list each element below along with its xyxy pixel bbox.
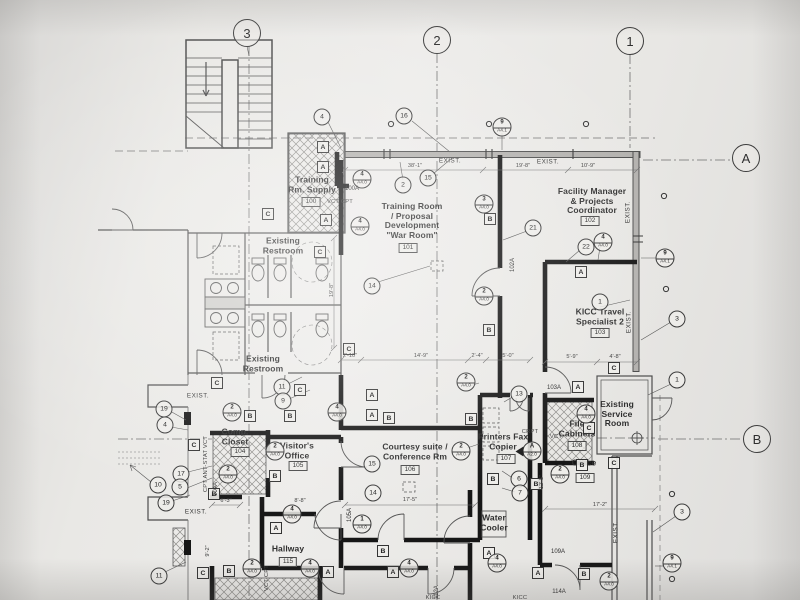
wall-tag: A xyxy=(320,214,332,226)
wall-tag: B xyxy=(487,473,499,485)
grid-marker-A: A xyxy=(732,144,760,172)
detail-callout: 2A4.0 xyxy=(266,442,285,461)
wall-tag: C xyxy=(197,567,209,579)
grid-marker-2: 2 xyxy=(423,26,451,54)
door-tag: 105A xyxy=(347,508,353,522)
room-label: Comp.Closet xyxy=(222,428,249,447)
room-number: 108 xyxy=(568,441,587,451)
detail-callout: 2A4.0 xyxy=(457,373,476,392)
keynote-callout: 19 xyxy=(156,401,173,418)
grid-marker-B: B xyxy=(743,425,771,453)
room-label: TrainingRm. Supply xyxy=(288,176,336,195)
detail-callout: 4A4.0 xyxy=(328,403,347,422)
detail-callout: 4A4.0 xyxy=(400,559,419,578)
wall-tag: B xyxy=(377,545,389,557)
keynote-callout: 16 xyxy=(396,108,413,125)
wall-tag: A xyxy=(366,389,378,401)
detail-callout: 4A4.0 xyxy=(283,505,302,524)
room-number: 106 xyxy=(401,465,420,475)
room-label: Training Room/ ProposalDevelopment"War R… xyxy=(382,202,443,240)
room-label: WaterCooler xyxy=(480,514,508,533)
detail-callout: 2A4.0 xyxy=(452,442,471,461)
room-label: Visitor'sOffice xyxy=(280,442,314,461)
wall-tag: A xyxy=(317,161,329,173)
door-tag: 100A xyxy=(345,186,359,192)
detail-callout: 4A4.0 xyxy=(594,233,613,252)
finish-note: VCT CPT xyxy=(264,565,270,591)
exist-label: EXIST. xyxy=(187,393,209,400)
dimension-text: 5'-0" xyxy=(502,353,513,359)
detail-callout: 2A4.0 xyxy=(219,465,238,484)
finish-note: CPT ANT-STAT VCT xyxy=(203,436,209,492)
exist-label: EXIST. xyxy=(439,158,461,165)
dimension-text: 12'-5" xyxy=(539,475,545,489)
dimension-text: 17'-5" xyxy=(403,497,417,503)
wall-tag: A xyxy=(317,141,329,153)
dimension-text: 38'-1" xyxy=(408,163,422,169)
detail-callout: 9A4.1 xyxy=(663,554,682,573)
wall-tag: C xyxy=(314,246,326,258)
wall-tag: C xyxy=(211,377,223,389)
detail-callout: 9A4.1 xyxy=(656,249,675,268)
room-label: Hallway xyxy=(272,544,304,554)
room-number: 107 xyxy=(497,454,516,464)
detail-callout: 2A4.0 xyxy=(475,287,494,306)
dimension-text: 2'-4" xyxy=(471,353,482,359)
floorplan-labels: 321ABTrainingRm. Supply100Training Room/… xyxy=(0,0,800,600)
keynote-callout: 10 xyxy=(150,477,167,494)
wall-tag: A xyxy=(270,522,282,534)
dimension-text: 6'-3" xyxy=(220,498,231,504)
keynote-callout: 22 xyxy=(578,239,595,256)
dimension-text: 10'-9" xyxy=(581,163,595,169)
grid-marker-3: 3 xyxy=(233,19,261,47)
dimension-text: 14'-9" xyxy=(414,353,428,359)
keynote-callout: 9 xyxy=(275,393,292,410)
wall-tag: A xyxy=(387,566,399,578)
door-tag: 109A xyxy=(551,549,565,555)
keynote-callout: 5 xyxy=(172,479,189,496)
dimension-text: 19'-8" xyxy=(516,163,530,169)
door-tag: 103A xyxy=(547,385,561,391)
detail-callout: 2A4.0 xyxy=(551,465,570,484)
keynote-callout: 7 xyxy=(512,485,529,502)
wall-tag: C xyxy=(608,457,620,469)
detail-callout: 4A4.0 xyxy=(301,559,320,578)
room-number: 101 xyxy=(399,243,418,253)
keynote-callout: 15 xyxy=(364,456,381,473)
wall-tag: B xyxy=(284,410,296,422)
room-number: 115 xyxy=(279,557,297,567)
wall-tag: A xyxy=(366,409,378,421)
wall-tag: C xyxy=(583,422,595,434)
keynote-callout: 13 xyxy=(511,386,528,403)
room-label: Facility Manager& ProjectsCoordinator xyxy=(558,187,626,216)
room-number: 103 xyxy=(591,328,610,338)
finish-note: VCT CPT xyxy=(327,199,353,205)
section-marker: AA2.0 xyxy=(523,442,542,461)
wall-tag: A xyxy=(575,266,587,278)
wall-tag: A xyxy=(532,567,544,579)
door-tag: 114A xyxy=(552,589,566,595)
wall-tag: A xyxy=(572,381,584,393)
detail-callout: 9A4.1 xyxy=(493,118,512,137)
wall-tag: C xyxy=(262,208,274,220)
wall-tag: B xyxy=(269,470,281,482)
room-number: 109 xyxy=(576,473,595,483)
room-label: ExistingServiceRoom xyxy=(600,400,634,429)
keynote-callout: 3 xyxy=(669,311,686,328)
keynote-callout: 2 xyxy=(395,177,412,194)
room-number: 100 xyxy=(302,197,321,207)
wall-tag: B xyxy=(578,568,590,580)
wall-tag: B xyxy=(223,565,235,577)
room-label: ExistingRestroom xyxy=(243,355,283,374)
door-tag: 102A xyxy=(510,258,516,272)
keynote-callout: 15 xyxy=(420,170,437,187)
room-number: 104 xyxy=(231,447,250,457)
dimension-text: 9'-2" xyxy=(205,545,211,556)
wall-tag: B xyxy=(465,413,477,425)
wall-tag: C xyxy=(608,362,620,374)
dimension-text: 17'-2" xyxy=(593,502,607,508)
keynote-callout: 1 xyxy=(592,294,609,311)
wall-tag: C xyxy=(294,384,306,396)
detail-callout: 1A4.0 xyxy=(353,515,372,534)
detail-callout: 3A4.0 xyxy=(475,195,494,214)
exist-label: EXIST. xyxy=(613,521,620,543)
keynote-callout: 4 xyxy=(157,417,174,434)
exist-label: EXIST. xyxy=(626,311,633,333)
wall-tag: B xyxy=(576,459,588,471)
finish-note: KICC xyxy=(513,595,528,600)
wall-tag: C xyxy=(188,439,200,451)
keynote-callout: 14 xyxy=(364,278,381,295)
dimension-text: 5'-9" xyxy=(566,354,577,360)
dimension-text: 4'-8" xyxy=(609,354,620,360)
detail-callout: 4A4.0 xyxy=(488,554,507,573)
finish-note: VCT xyxy=(550,434,562,440)
wall-tag: A xyxy=(322,566,334,578)
dimension-text: 2'-10" xyxy=(343,353,357,359)
room-number: 105 xyxy=(289,461,308,471)
wall-tag: B xyxy=(484,213,496,225)
room-number: 102 xyxy=(581,216,600,226)
keynote-callout: 21 xyxy=(525,220,542,237)
keynote-callout: 4 xyxy=(314,109,331,126)
dimension-text: 19'-8" xyxy=(329,283,335,297)
exist-label: EXIST. xyxy=(185,509,207,516)
detail-callout: 2A4.0 xyxy=(243,559,262,578)
detail-callout: 4A4.0 xyxy=(577,405,596,424)
detail-callout: 4A4.0 xyxy=(351,217,370,236)
keynote-callout: 19 xyxy=(158,495,175,512)
keynote-callout: 1 xyxy=(669,372,686,389)
keynote-callout: 11 xyxy=(151,568,168,585)
wall-tag: B xyxy=(244,410,256,422)
exist-label: EXIST. xyxy=(537,159,559,166)
blueprint-photo: 321ABTrainingRm. Supply100Training Room/… xyxy=(0,0,800,600)
dimension-text: 8'-8" xyxy=(294,498,305,504)
wall-tag: B xyxy=(383,412,395,424)
room-label: ExistingRestroom xyxy=(263,237,303,256)
keynote-callout: 14 xyxy=(365,485,382,502)
finish-note: KICC xyxy=(426,595,441,600)
detail-callout: 2A4.0 xyxy=(223,403,242,422)
keynote-callout: 3 xyxy=(674,504,691,521)
detail-callout: 2A4.0 xyxy=(600,572,619,591)
door-tag: 104A xyxy=(213,482,219,496)
room-label: Courtesy suite /Conference Rm xyxy=(382,443,447,462)
grid-marker-1: 1 xyxy=(616,27,644,55)
finish-note: CRPT xyxy=(522,429,539,435)
exist-label: EXIST. xyxy=(625,201,632,223)
wall-tag: B xyxy=(483,324,495,336)
